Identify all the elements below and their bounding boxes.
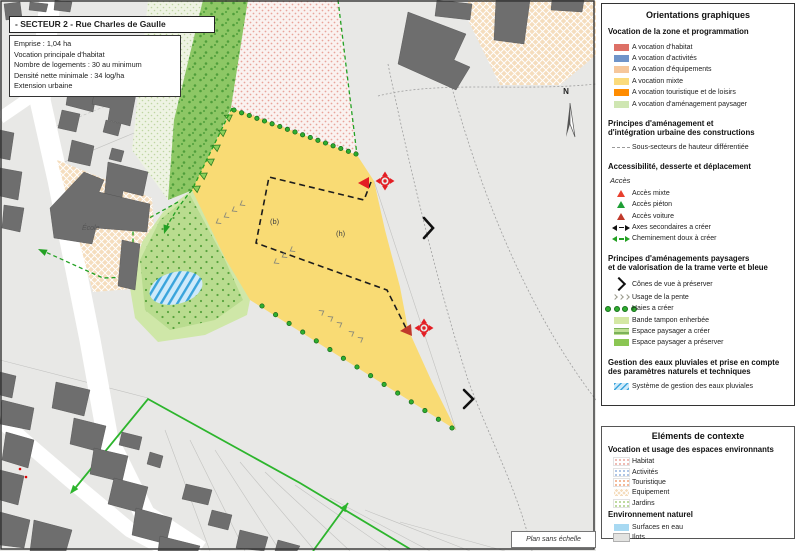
red-dot-marker — [19, 468, 22, 471]
legend-panel: Orientations graphiques Vocation de la z… — [601, 0, 799, 551]
legend-item-label: Habitat — [632, 458, 654, 465]
swatch-touristique — [614, 89, 629, 96]
legend-item: Axes secondaires a créer — [608, 222, 788, 233]
legend-item-label: Equipement — [632, 489, 669, 496]
legend-item-label: Jardins — [632, 500, 655, 507]
legend-item: A vocation mixte — [608, 76, 788, 87]
map-panel: - SECTEUR 2 - Rue Charles de Gaulle Empr… — [0, 0, 596, 551]
legend-item: Espace paysager a préserver — [608, 337, 788, 348]
context-section-vocation: Vocation et usage des espaces environnan… — [608, 445, 788, 455]
subzone-b-label: (b) — [270, 217, 279, 226]
legend-item-label: Système de gestion des eaux pluviales — [632, 383, 753, 390]
legend-box-contexte: Eléments de contexte Vocation et usage d… — [601, 426, 795, 539]
legend-title: Orientations graphiques — [608, 10, 788, 20]
legend-item: A vocation d'aménagement paysager — [608, 98, 788, 109]
legend-item-label: Axes secondaires a créer — [632, 224, 711, 231]
swatch-ctx-jardins — [613, 499, 630, 508]
header-line: Principes d'aménagement et — [608, 119, 788, 129]
legend-item: Sous-secteurs de hauteur différentiée — [608, 142, 788, 153]
swatch-espace-creer — [614, 328, 629, 335]
north-label: N — [556, 87, 576, 96]
green-dash-icon — [619, 238, 624, 239]
legend-item: Espace paysager a créer — [608, 326, 788, 337]
legend-item: Haies a créer — [608, 303, 788, 314]
legend-item: Surfaces en eau — [608, 522, 788, 532]
arrow-left-icon — [612, 225, 617, 231]
legend-item-label: Haies a créer — [632, 305, 674, 312]
swatch-ctx-touristique — [613, 478, 630, 487]
legend-item: Ilots — [608, 532, 788, 542]
legend-item-label: A vocation touristique et de loisirs — [632, 89, 736, 96]
swatch-espace-preserver — [614, 339, 629, 346]
green-arrow-right-icon — [625, 236, 630, 242]
legend-subheader-acces: Accès — [610, 176, 788, 185]
triangle-icon-darkred — [617, 213, 625, 220]
context-title: Eléments de contexte — [608, 431, 788, 441]
info-line: Extension urbaine — [14, 81, 176, 92]
school-label: École — [82, 225, 100, 232]
legend-item: A vocation d'habitat — [608, 42, 788, 53]
swatch-habitat — [614, 44, 629, 51]
info-line: Vocation principale d'habitat — [14, 50, 176, 61]
legend-section-paysager: Principes d'aménagements paysagers et de… — [608, 254, 788, 273]
legend-item: A vocation touristique et de loisirs — [608, 87, 788, 98]
legend-section-eaux: Gestion des eaux pluviales et prise en c… — [608, 358, 788, 377]
legend-box-orientations: Orientations graphiques Vocation de la z… — [601, 3, 795, 406]
legend-item: Cônes de vue à préserver — [608, 277, 788, 292]
screenshot-root: - SECTEUR 2 - Rue Charles de Gaulle Empr… — [0, 0, 800, 551]
legend-item: Système de gestion des eaux pluviales — [608, 381, 788, 392]
legend-item: Cheminement doux à créer — [608, 233, 788, 244]
legend-section-access: Accessibilité, desserte et déplacement — [608, 162, 788, 172]
header-line: d'intégration urbaine des constructions — [608, 128, 788, 138]
legend-item: Touristique — [608, 477, 788, 487]
legend-section-vocation: Vocation de la zone et programmation — [608, 27, 788, 37]
dashed-line-icon — [612, 147, 630, 148]
sector-title-box: - SECTEUR 2 - Rue Charles de Gaulle — [9, 16, 215, 33]
legend-item-label: A vocation mixte — [632, 78, 683, 85]
header-line: des paramètres naturels et techniques — [608, 367, 788, 377]
swatch-eaux-pluviales — [614, 383, 629, 390]
arrow-right-icon — [625, 225, 630, 231]
legend-item-label: A vocation d'activités — [632, 55, 697, 62]
legend-item: Jardins — [608, 498, 788, 508]
legend-item: Activités — [608, 467, 788, 477]
pente-icon — [613, 295, 629, 299]
legend-item: Bande tampon enherbée — [608, 314, 788, 325]
legend-item-label: Accès voiture — [632, 213, 674, 220]
legend-item: Equipement — [608, 488, 788, 498]
sector-info-box: Emprise : 1,04 ha Vocation principale d'… — [9, 35, 181, 97]
dash-icon — [619, 227, 624, 228]
legend-item-label: Usage de la pente — [632, 294, 689, 301]
legend-item: Accès voiture — [608, 211, 788, 222]
info-line: Emprise : 1,04 ha — [14, 39, 176, 50]
legend-item-label: Activités — [632, 469, 658, 476]
legend-item-label: A vocation d'équipements — [632, 66, 712, 73]
swatch-amenagement-paysager — [614, 101, 629, 108]
swatch-ctx-equipement — [614, 489, 629, 496]
swatch-activites — [614, 55, 629, 62]
legend-item-label: Ilots — [632, 534, 645, 541]
header-line: Gestion des eaux pluviales et prise en c… — [608, 358, 788, 368]
legend-item: A vocation d'activités — [608, 53, 788, 64]
swatch-mixte — [614, 78, 629, 85]
legend-item: Accès mixte — [608, 188, 788, 199]
swatch-equipements — [614, 66, 629, 73]
legend-item-label: Accès piéton — [632, 201, 672, 208]
legend-item-label: Bande tampon enherbée — [632, 317, 709, 324]
swatch-ctx-habitat — [613, 457, 630, 466]
swatch-surfaces-eau — [614, 524, 629, 531]
legend-item-label: Cônes de vue à préserver — [632, 281, 713, 288]
legend-item-label: Espace paysager a préserver — [632, 339, 723, 346]
legend-item-label: Sous-secteurs de hauteur différentiée — [632, 144, 749, 151]
legend-item-label: Accès mixte — [632, 190, 670, 197]
header-line: Principes d'aménagements paysagers — [608, 254, 788, 264]
swatch-bande-tampon — [614, 317, 629, 324]
legend-item: A vocation d'équipements — [608, 64, 788, 75]
legend-item-label: Surfaces en eau — [632, 524, 683, 531]
swatch-ilots — [613, 533, 630, 542]
legend-item-label: Touristique — [632, 479, 666, 486]
legend-item: Accès piéton — [608, 199, 788, 210]
swatch-ctx-activites — [613, 468, 630, 477]
green-arrow-left-icon — [612, 236, 617, 242]
info-line: Nombre de logements : 30 au minimum — [14, 60, 176, 71]
legend-item-label: Espace paysager a créer — [632, 328, 710, 335]
context-section-nature: Environnement naturel — [608, 510, 788, 520]
header-line: et de valorisation de la trame verte et … — [608, 263, 788, 273]
legend-item: Habitat — [608, 457, 788, 467]
cone-vue-icon — [612, 277, 626, 291]
red-dot-marker — [25, 476, 28, 479]
scale-note: Plan sans échelle — [511, 531, 596, 548]
subzone-h-label: (h) — [336, 229, 345, 238]
legend-item: Usage de la pente — [608, 292, 788, 303]
legend-item-label: Cheminement doux à créer — [632, 235, 716, 242]
legend-item-label: A vocation d'aménagement paysager — [632, 101, 747, 108]
info-line: Densité nette minimale : 34 log/ha — [14, 71, 176, 82]
triangle-icon-red — [617, 190, 625, 197]
triangle-icon-green — [617, 201, 625, 208]
legend-section-principes: Principes d'aménagement et d'intégration… — [608, 119, 788, 138]
legend-item-label: A vocation d'habitat — [632, 44, 693, 51]
